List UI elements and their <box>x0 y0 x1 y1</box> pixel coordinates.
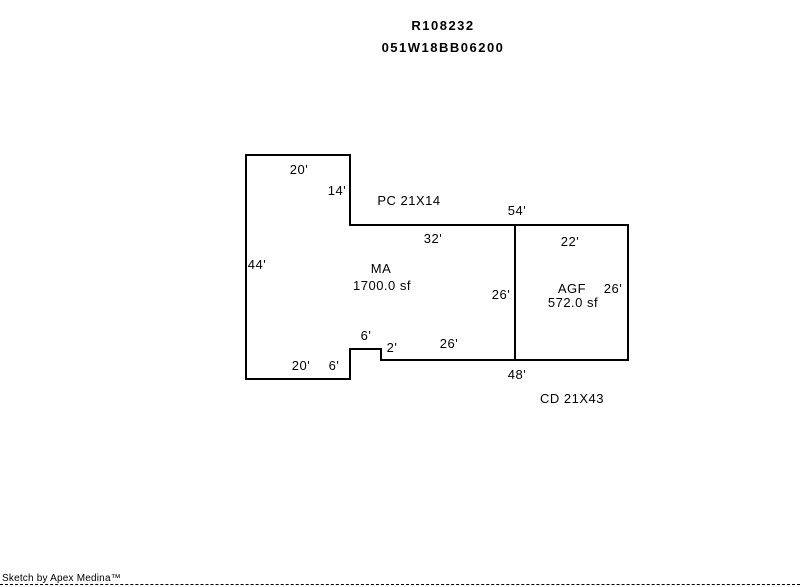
area-code-ma: MA <box>371 262 392 276</box>
area-sqft-agf: 572.0 sf <box>548 296 598 310</box>
property-sketch-page: R108232 051W18BB06200 20' 14' PC 21X14 5… <box>0 0 800 587</box>
dim-26-right: 26' <box>604 282 622 296</box>
area-code-agf: AGF <box>558 282 586 296</box>
dim-bottom-6: 6' <box>329 359 340 373</box>
area-sqft-ma: 1700.0 sf <box>353 279 411 293</box>
dim-top-20: 20' <box>290 163 308 177</box>
sketch-credit: Sketch by Apex Medina™ <box>2 573 121 584</box>
dim-26-interior: 26' <box>492 288 510 302</box>
building-sketch-canvas <box>0 0 800 587</box>
dim-bottom-48: 48' <box>508 368 526 382</box>
dim-32: 32' <box>424 232 442 246</box>
dim-step-14: 14' <box>328 184 346 198</box>
building-outline <box>246 155 628 379</box>
dim-lower-26: 26' <box>440 337 458 351</box>
area-label-pc: PC 21X14 <box>377 194 440 208</box>
dim-left-44: 44' <box>248 258 266 272</box>
dim-22: 22' <box>561 235 579 249</box>
dim-notch-6: 6' <box>361 329 372 343</box>
area-label-cd: CD 21X43 <box>540 392 604 406</box>
page-bottom-rule <box>0 584 800 585</box>
dim-notch-2: 2' <box>387 341 398 355</box>
dim-top-54: 54' <box>508 204 526 218</box>
dim-bottom-20: 20' <box>292 359 310 373</box>
